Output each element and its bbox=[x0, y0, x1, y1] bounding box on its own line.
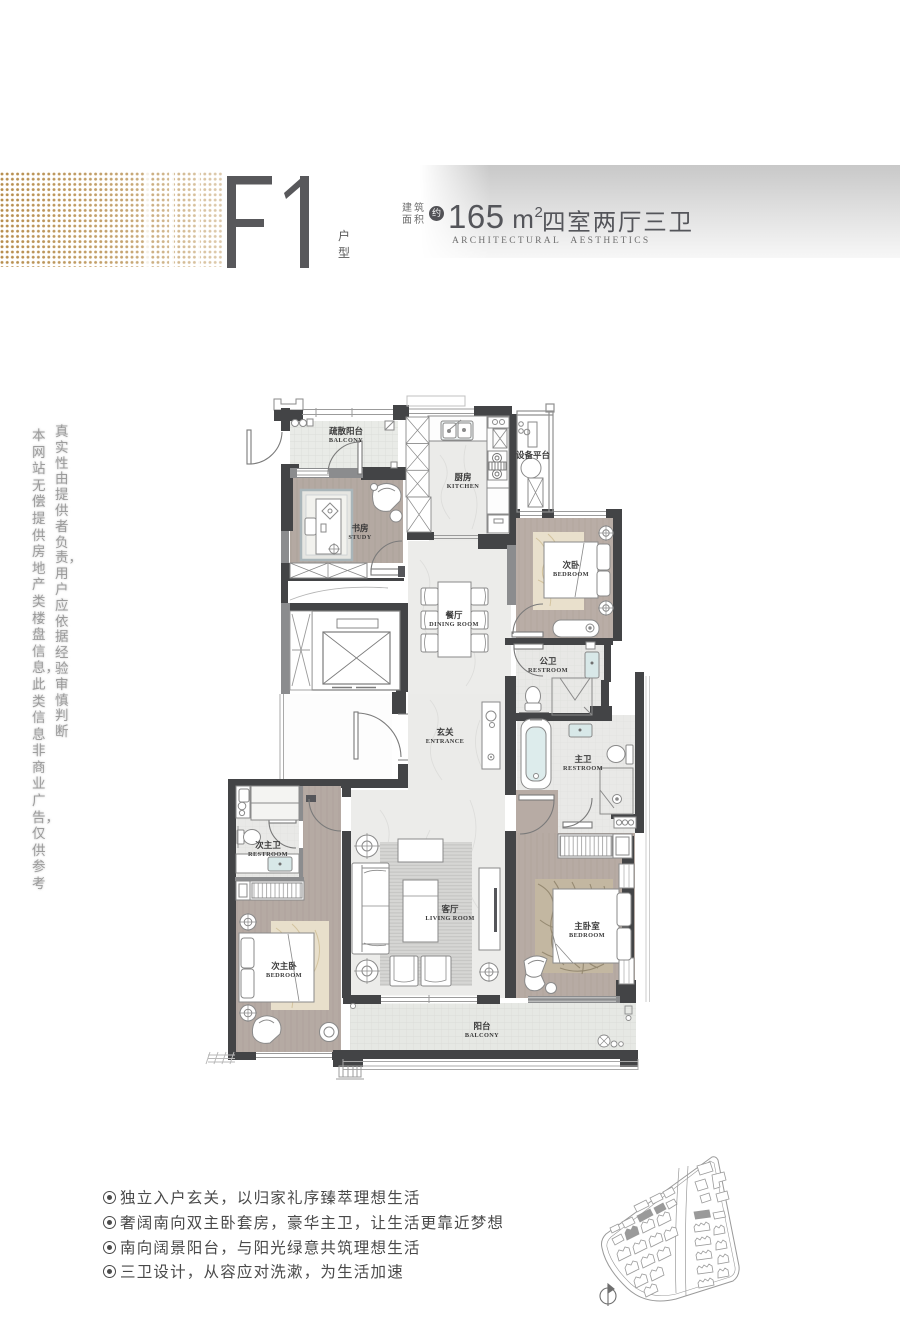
svg-text:玄关: 玄关 bbox=[436, 727, 454, 737]
svg-text:主卫: 主卫 bbox=[574, 754, 592, 764]
svg-text:疏散阳台: 疏散阳台 bbox=[329, 426, 364, 436]
svg-text:阳台: 阳台 bbox=[473, 1021, 491, 1031]
svg-text:次主卫: 次主卫 bbox=[255, 840, 281, 850]
svg-text:公卫: 公卫 bbox=[539, 656, 557, 666]
svg-text:餐厅: 餐厅 bbox=[444, 610, 463, 620]
svg-text:BEDROOM: BEDROOM bbox=[266, 972, 302, 979]
svg-text:RESTROOM: RESTROOM bbox=[528, 667, 568, 674]
svg-text:主卧室: 主卧室 bbox=[574, 921, 600, 931]
svg-text:设备平台: 设备平台 bbox=[516, 450, 551, 460]
svg-text:KITCHEN: KITCHEN bbox=[447, 483, 480, 490]
svg-text:BEDROOM: BEDROOM bbox=[553, 571, 589, 578]
svg-text:LIVING ROOM: LIVING ROOM bbox=[425, 915, 474, 922]
svg-text:ENTRANCE: ENTRANCE bbox=[426, 738, 465, 745]
svg-text:BALCONY: BALCONY bbox=[465, 1032, 499, 1039]
svg-text:STUDY: STUDY bbox=[348, 534, 371, 541]
svg-text:RESTROOM: RESTROOM bbox=[563, 765, 603, 772]
svg-text:RESTROOM: RESTROOM bbox=[248, 851, 288, 858]
svg-text:DINING ROOM: DINING ROOM bbox=[429, 621, 479, 628]
svg-text:次主卧: 次主卧 bbox=[271, 961, 297, 971]
svg-text:次卧: 次卧 bbox=[562, 560, 580, 570]
svg-text:客厅: 客厅 bbox=[440, 904, 459, 914]
svg-text:BALCONY: BALCONY bbox=[329, 437, 363, 444]
svg-text:书房: 书房 bbox=[351, 523, 368, 533]
svg-text:BEDROOM: BEDROOM bbox=[569, 932, 605, 939]
svg-text:厨房: 厨房 bbox=[454, 472, 471, 482]
